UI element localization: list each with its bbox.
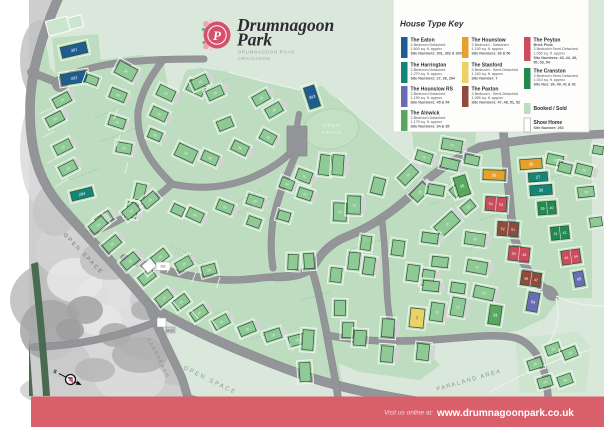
svg-text:44: 44 [574, 255, 579, 260]
svg-text:28: 28 [338, 210, 342, 214]
svg-text:Site Number: 292: Site Number: 292 [534, 126, 564, 130]
svg-text:53: 53 [499, 203, 503, 207]
svg-text:CRAIGAVON: CRAIGAVON [238, 56, 270, 61]
svg-text:House Type Key: House Type Key [400, 20, 464, 29]
svg-text:Site Number: 7: Site Number: 7 [472, 77, 498, 81]
svg-text:Site Numbers: 36 & 50: Site Numbers: 36 & 50 [472, 52, 511, 56]
svg-text:Site Numbers: 34 & 35: Site Numbers: 34 & 35 [411, 125, 450, 129]
svg-text:292: 292 [160, 265, 166, 269]
svg-text:1,600 sq. ft. approx: 1,600 sq. ft. approx [411, 47, 443, 51]
svg-text:1,175 sq. ft. approx: 1,175 sq. ft. approx [411, 120, 443, 124]
svg-text:54: 54 [489, 202, 493, 206]
svg-text:3 Bedroom Semi-Detached: 3 Bedroom Semi-Detached [534, 47, 578, 51]
svg-text:Site Numbers: 301, 302 & 303: Site Numbers: 301, 302 & 303 [411, 52, 462, 56]
svg-text:Booked / Sold: Booked / Sold [534, 106, 567, 112]
svg-text:39: 39 [540, 207, 544, 211]
svg-text:3 Bedroom Semi-Detached: 3 Bedroom Semi-Detached [534, 74, 578, 78]
svg-text:OPEN: OPEN [323, 123, 341, 128]
svg-text:40: 40 [549, 206, 553, 210]
svg-text:Park: Park [236, 30, 272, 50]
svg-text:50, 53, 54: 50, 53, 54 [534, 60, 551, 64]
svg-text:1,160 sq. ft. approx: 1,160 sq. ft. approx [472, 72, 504, 76]
svg-text:47: 47 [534, 278, 539, 283]
svg-text:DRUMNAGOON ROAD: DRUMNAGOON ROAD [238, 50, 295, 55]
svg-text:SPACE: SPACE [322, 130, 343, 135]
svg-text:Site Numbers: 27, 36, 294: Site Numbers: 27, 36, 294 [411, 77, 456, 81]
svg-text:28: 28 [352, 203, 356, 207]
svg-text:3 Bedroom Detached: 3 Bedroom Detached [411, 68, 446, 72]
svg-text:1,055 sq. ft. approx: 1,055 sq. ft. approx [534, 52, 566, 56]
svg-text:3 Bedroom - Semi-Detached: 3 Bedroom - Semi-Detached [472, 92, 519, 96]
svg-text:SALES: SALES [166, 330, 174, 333]
svg-text:3 Bedroom Detached: 3 Bedroom Detached [411, 116, 446, 120]
svg-text:28: 28 [584, 190, 588, 194]
svg-text:1,055 sq. ft. approx: 1,055 sq. ft. approx [472, 96, 504, 100]
svg-text:4 Bedroom Detached: 4 Bedroom Detached [411, 43, 446, 47]
svg-text:1,010 sq. ft. approx: 1,010 sq. ft. approx [534, 78, 566, 82]
svg-text:52: 52 [501, 227, 505, 231]
svg-text:1,190 sq. ft. approx: 1,190 sq. ft. approx [411, 96, 443, 100]
svg-text:41: 41 [553, 232, 557, 236]
svg-text:Site Numbers: 43, 44, 49,: Site Numbers: 43, 44, 49, [534, 56, 577, 60]
svg-text:Site Nos: 39, 40, 41 & 42: Site Nos: 39, 40, 41 & 42 [534, 83, 576, 87]
svg-text:42: 42 [562, 231, 566, 235]
svg-text:3 Bedroom - Detached: 3 Bedroom - Detached [472, 43, 509, 47]
svg-text:Site Numbers: 47, 48, 51, 52: Site Numbers: 47, 48, 51, 52 [472, 101, 521, 105]
svg-text:50: 50 [512, 252, 516, 256]
svg-text:Site Numbers: 45 & 54: Site Numbers: 45 & 54 [411, 101, 451, 105]
svg-text:P: P [213, 28, 222, 43]
svg-text:48: 48 [524, 276, 529, 281]
svg-text:Visit us online at:: Visit us online at: [384, 410, 433, 417]
svg-text:1,190 sq. ft. approx: 1,190 sq. ft. approx [472, 47, 504, 51]
svg-text:Brick Plots: Brick Plots [534, 43, 553, 47]
svg-text:3 Bedroom Detached: 3 Bedroom Detached [411, 92, 446, 96]
svg-text:43: 43 [564, 256, 569, 261]
svg-text:3 Bedroom - Semi-Detached: 3 Bedroom - Semi-Detached [472, 68, 519, 72]
svg-text:49: 49 [522, 253, 526, 257]
svg-text:1,270 sq. ft. approx: 1,270 sq. ft. approx [411, 72, 443, 76]
svg-text:www.drumnagoonpark.co.uk: www.drumnagoonpark.co.uk [436, 408, 574, 419]
svg-text:51: 51 [511, 228, 515, 232]
